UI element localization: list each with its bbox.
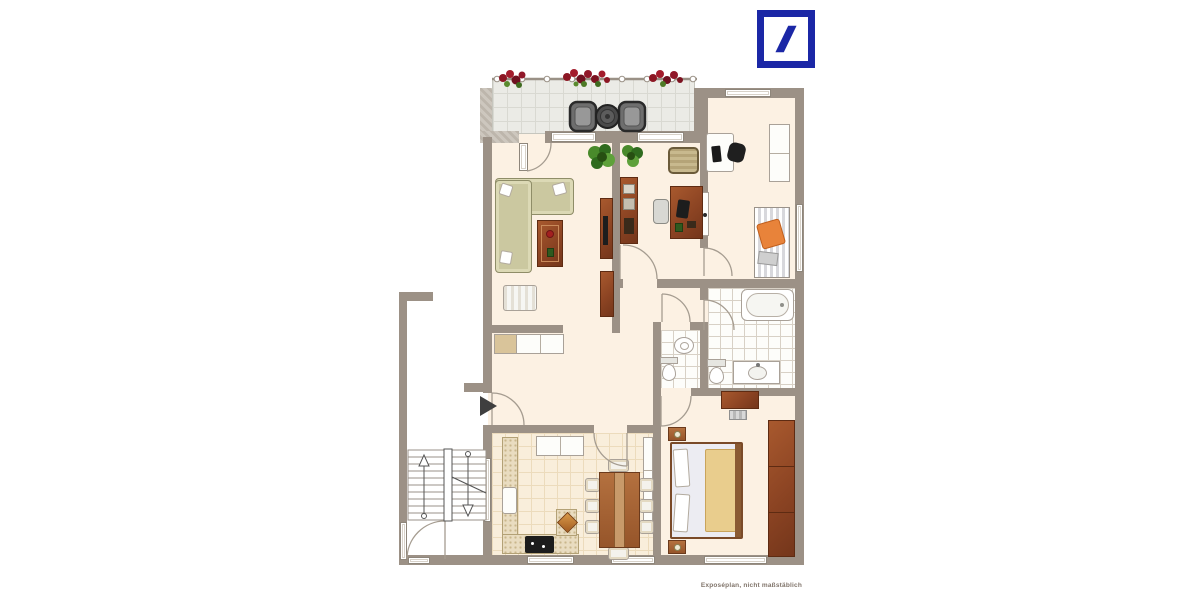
stool [729,410,747,420]
shelf-items [624,218,634,234]
study-armchair [668,147,699,174]
table-decor [547,248,554,257]
bedroom-wardrobe [768,420,795,557]
dining-chair [639,520,654,534]
wall-segment [483,425,594,433]
double-bed [670,442,743,539]
kitchen-counter-left [502,437,518,535]
dining-chair [639,478,654,492]
sideboard-section [495,335,517,353]
childrens-bed [754,207,790,278]
laptop [711,146,722,163]
wall-segment [492,325,563,333]
laptop [676,199,690,218]
wardrobe-divider [769,512,794,513]
bathtub [741,289,794,321]
faucet [756,363,760,367]
stairwell-wall [399,292,433,301]
toilet-bowl [709,367,724,384]
lamp [674,544,681,551]
dining-chair [608,547,629,560]
toilet-bowl [662,364,676,381]
floor-plan-canvas: Exposéplan, nicht maßstäblich [0,0,1200,600]
stairwell-door-arc [407,521,445,559]
wall-segment [700,288,708,300]
bed-blanket [705,449,738,532]
pillow [757,251,778,266]
staircase [408,449,486,521]
sofa-cushion [499,250,513,265]
fridge [502,487,517,514]
desk-items [687,221,696,228]
window [704,556,767,564]
study-desk [670,186,703,239]
armchair [503,285,537,311]
vanity-sink [748,366,767,380]
bed-footboard [735,444,741,537]
living-sideboard [600,271,614,317]
shelf-items [623,184,635,194]
db-slash-icon [764,17,808,61]
cabinet-divider [560,437,561,455]
study-chair [653,199,669,224]
wall-segment [653,396,661,557]
dining-chair [585,520,600,534]
dresser [721,391,759,409]
nightstand [668,427,686,441]
basin-inner [680,342,689,350]
shelf-items [623,198,635,210]
dining-chair [585,499,600,513]
window [527,556,574,564]
bed-pillow [673,494,691,533]
stove [525,536,554,553]
window [484,458,491,522]
window [796,204,803,272]
wc-toilet [660,357,678,383]
door-handle [703,213,707,217]
wall-segment [690,322,708,330]
wall-segment [464,383,492,392]
orange-blanket [756,218,786,250]
wall-segment [795,96,804,565]
dining-chair [639,499,654,513]
nightstand [668,540,686,554]
tv [603,216,608,245]
wardrobe-divider [770,153,789,154]
window [551,132,596,142]
coffee-table [537,220,563,267]
wall-segment [657,279,804,288]
window [725,89,771,97]
plan-caption: Exposéplan, nicht maßstäblich [701,582,802,589]
wardrobe-divider [769,466,794,467]
childrens-wardrobe [769,124,790,182]
wall-segment [627,425,661,433]
deutsche-bank-logo [757,10,815,68]
balcony-door-leaf [519,143,528,171]
wall-segment [483,137,492,393]
wall-segment [480,88,492,137]
hallway-sideboard [494,334,564,354]
table-decor [546,230,554,238]
toilet-tank [707,359,726,367]
window [408,557,430,564]
lamp [674,431,681,438]
tv-lowboard [600,198,613,259]
unit-divider [644,470,652,471]
desk-items [675,223,683,232]
bathroom-toilet [707,359,726,385]
dining-chair [608,459,629,472]
dining-chair [585,478,600,492]
sideboard-divider [540,335,541,353]
window [637,132,684,142]
table-runner [614,473,625,547]
dining-table [599,472,640,548]
balcony-floor [492,78,695,134]
kitchen-wall-cabinets [536,436,584,456]
window [400,522,407,560]
bookshelf [620,177,638,244]
toilet-tank [660,357,678,364]
vanity-counter [733,361,780,384]
wc-washbasin [674,337,694,354]
bed-pillow [673,449,691,488]
